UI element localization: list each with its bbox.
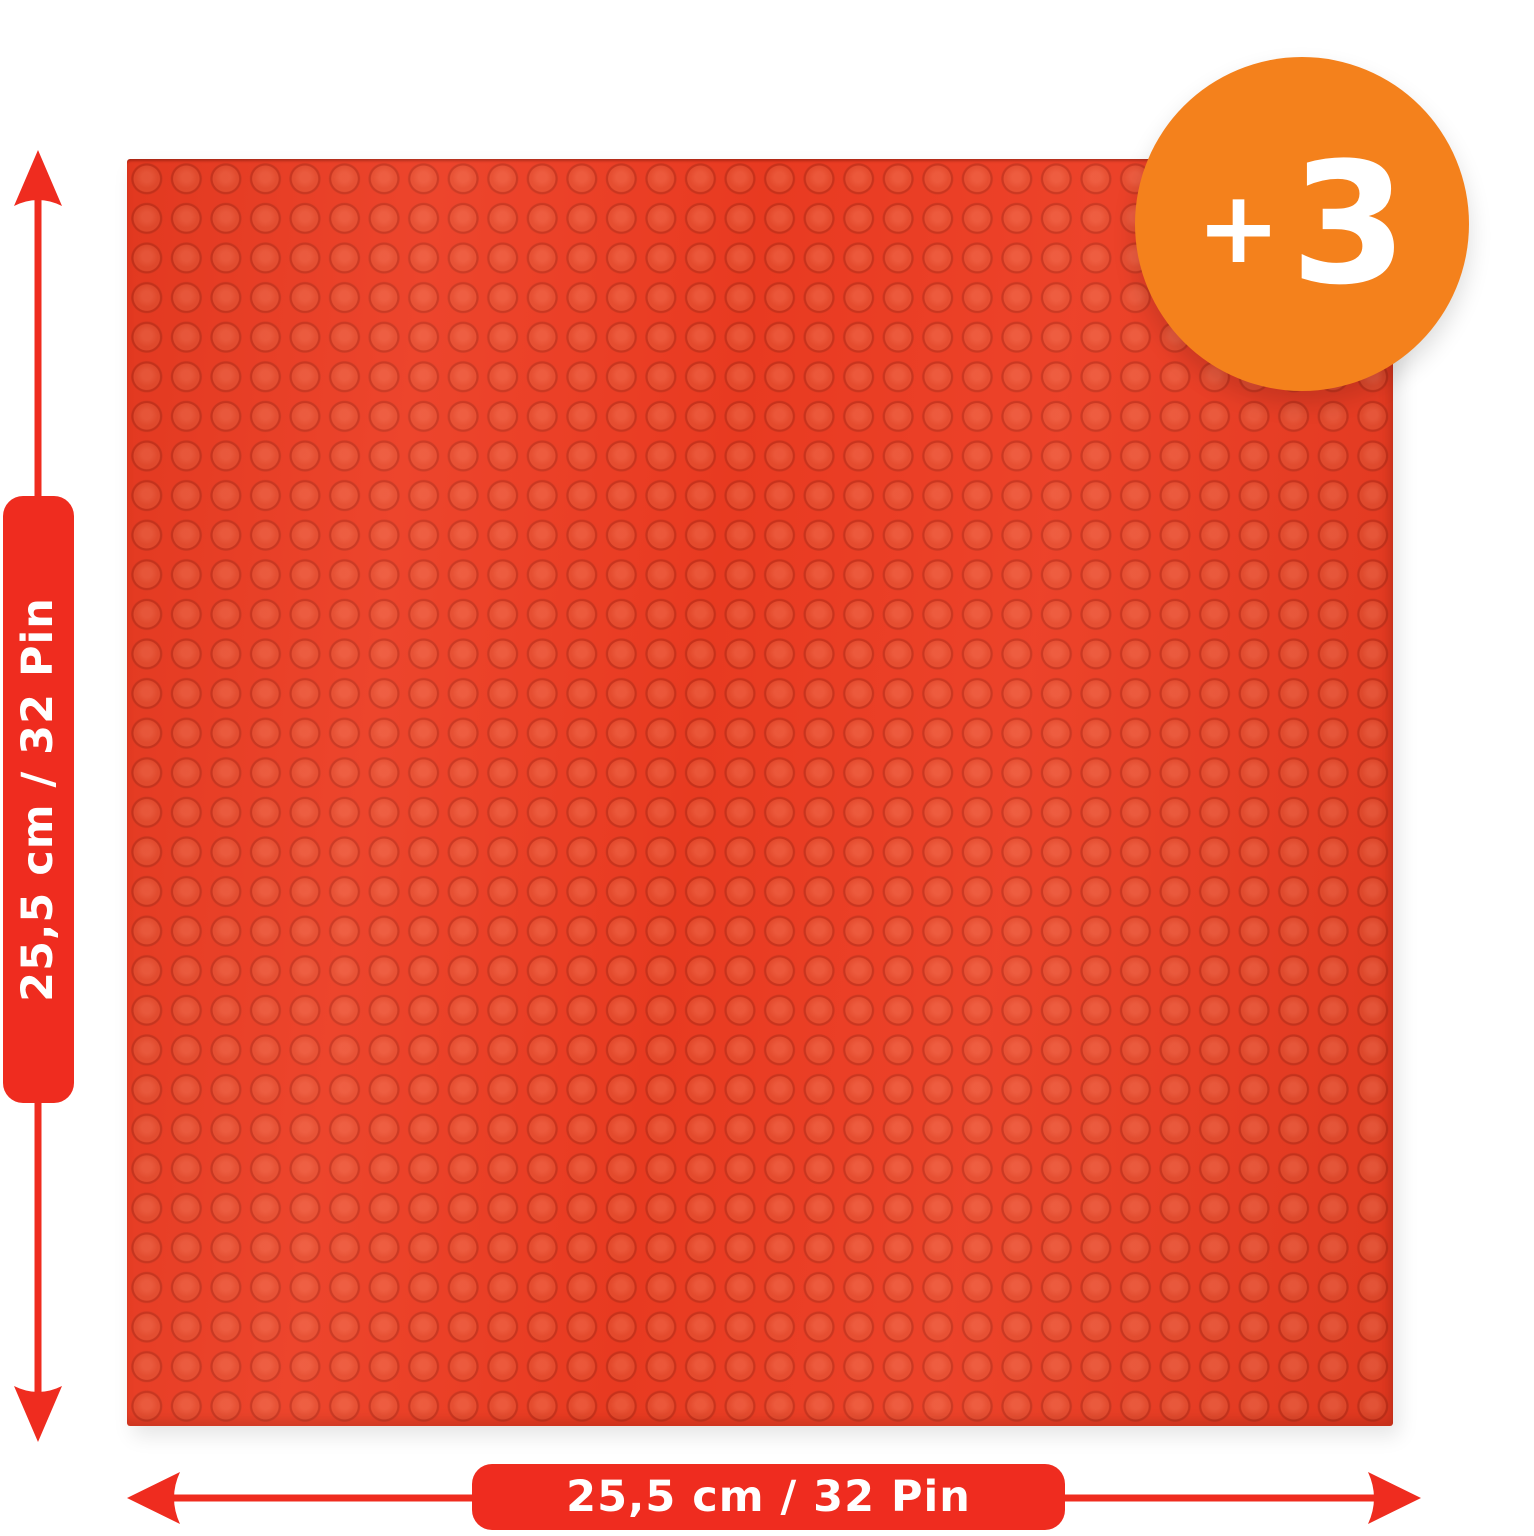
badge-count: 3 [1290, 140, 1407, 308]
arrowhead-right-icon [1368, 1472, 1421, 1524]
more-images-badge: + 3 [1135, 57, 1469, 391]
vertical-dimension-label-pill: 25,5 cm / 32 Pin [3, 496, 74, 1103]
badge-plus-sign: + [1197, 178, 1281, 278]
vertical-dimension-label: 25,5 cm / 32 Pin [17, 597, 60, 1002]
arrowhead-left-icon [127, 1472, 180, 1524]
horizontal-dimension-label: 25,5 cm / 32 Pin [566, 1476, 971, 1519]
product-photo: 25,5 cm / 32 Pin 25,5 cm / 32 Pin + 3 [0, 0, 1534, 1536]
arrowhead-up-icon [14, 150, 62, 206]
horizontal-dimension-label-pill: 25,5 cm / 32 Pin [472, 1464, 1065, 1530]
arrowhead-down-icon [14, 1386, 62, 1442]
